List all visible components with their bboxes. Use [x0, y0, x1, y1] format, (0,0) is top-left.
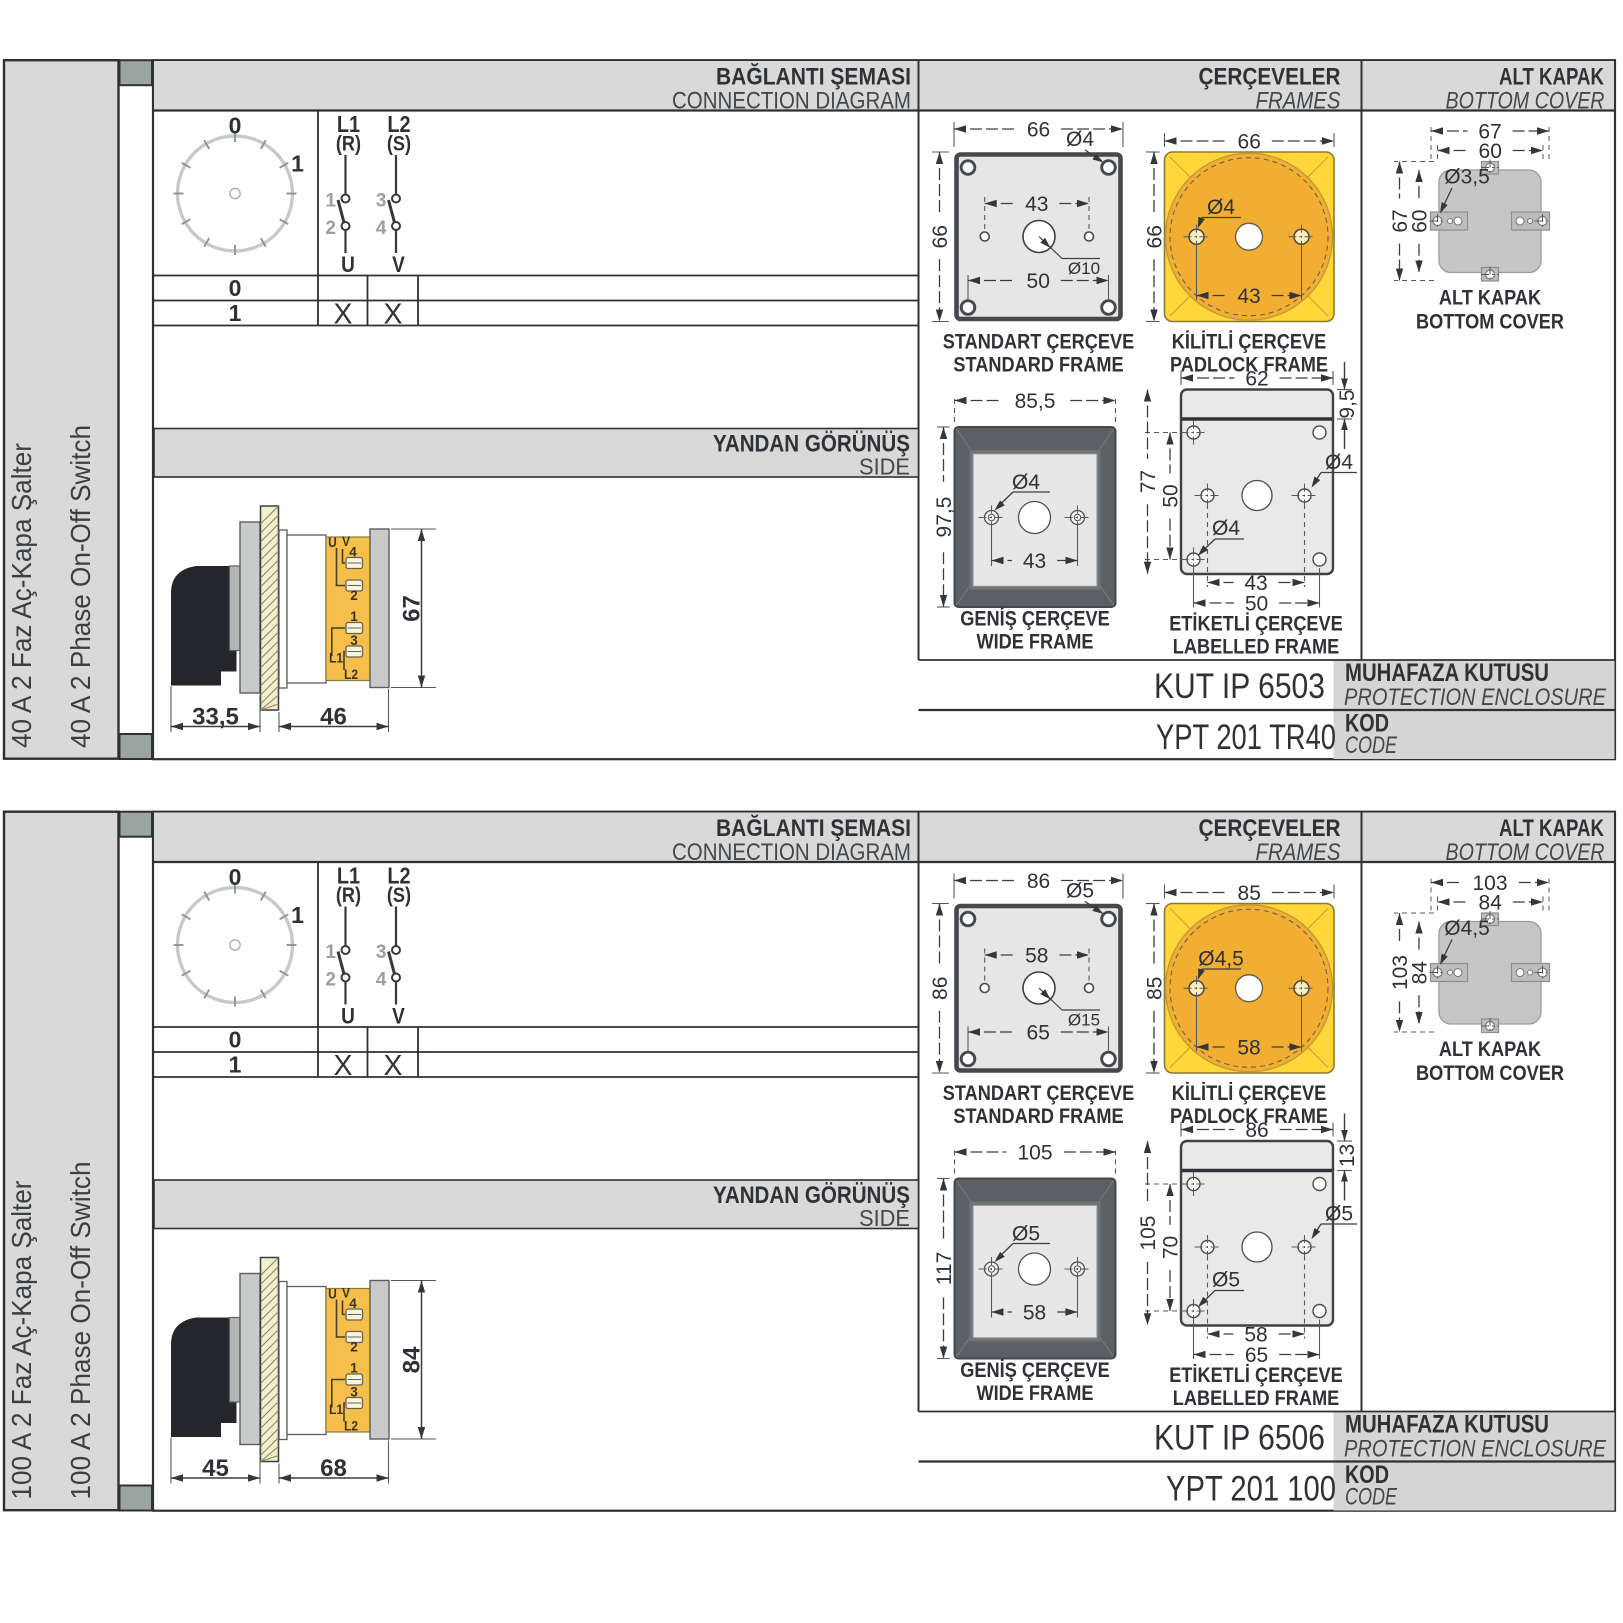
- svg-text:1: 1: [291, 151, 304, 177]
- svg-text:BOTTOM COVER: BOTTOM COVER: [1446, 88, 1605, 115]
- svg-text:Ø4: Ø4: [1325, 451, 1353, 474]
- svg-text:KİLİTLİ ÇERÇEVE: KİLİTLİ ÇERÇEVE: [1172, 331, 1326, 354]
- svg-text:50: 50: [1160, 484, 1183, 507]
- svg-text:(R): (R): [336, 884, 361, 907]
- svg-text:Ø15: Ø15: [1068, 1011, 1100, 1030]
- svg-text:4: 4: [376, 970, 387, 991]
- svg-text:45: 45: [202, 1455, 229, 1482]
- svg-text:X: X: [334, 1050, 353, 1082]
- svg-text:ETİKETLİ ÇERÇEVE: ETİKETLİ ÇERÇEVE: [1169, 1364, 1343, 1387]
- svg-text:77: 77: [1137, 470, 1160, 493]
- svg-text:1: 1: [325, 942, 336, 963]
- svg-text:ÇERÇEVELER: ÇERÇEVELER: [1199, 64, 1341, 91]
- svg-text:WIDE FRAME: WIDE FRAME: [976, 631, 1093, 654]
- svg-text:58: 58: [1025, 945, 1048, 968]
- svg-text:GENİŞ ÇERÇEVE: GENİŞ ÇERÇEVE: [960, 1359, 1109, 1382]
- svg-text:1: 1: [229, 1052, 242, 1078]
- svg-text:Ø4: Ø4: [1066, 128, 1094, 151]
- svg-text:60: 60: [1409, 210, 1432, 233]
- svg-text:66: 66: [929, 225, 952, 248]
- svg-text:Ø4: Ø4: [1207, 196, 1235, 219]
- svg-text:PROTECTION ENCLOSURE: PROTECTION ENCLOSURE: [1344, 684, 1607, 711]
- svg-text:43: 43: [1023, 550, 1046, 573]
- svg-text:ÇERÇEVELER: ÇERÇEVELER: [1199, 815, 1341, 842]
- svg-text:66: 66: [1027, 119, 1050, 142]
- svg-text:(R): (R): [336, 133, 361, 156]
- svg-text:3: 3: [376, 942, 387, 963]
- svg-text:1: 1: [350, 609, 358, 624]
- svg-text:40 A 2 Phase On-Off Switch: 40 A 2 Phase On-Off Switch: [65, 425, 96, 748]
- svg-text:43: 43: [1025, 193, 1048, 216]
- svg-text:FRAMES: FRAMES: [1256, 88, 1341, 115]
- svg-text:Ø3,5: Ø3,5: [1444, 166, 1490, 189]
- svg-text:L2: L2: [344, 1419, 358, 1434]
- svg-text:13: 13: [1336, 1144, 1359, 1167]
- svg-text:117: 117: [933, 1252, 956, 1285]
- svg-text:0: 0: [229, 864, 242, 890]
- svg-text:86: 86: [1245, 1119, 1268, 1142]
- svg-text:GENİŞ ÇERÇEVE: GENİŞ ÇERÇEVE: [960, 608, 1109, 631]
- svg-text:L1: L1: [329, 651, 344, 666]
- svg-text:CONNECTION DIAGRAM: CONNECTION DIAGRAM: [672, 839, 911, 866]
- svg-text:105: 105: [1017, 1142, 1052, 1165]
- svg-text:66: 66: [1238, 131, 1261, 154]
- svg-text:V: V: [392, 252, 405, 277]
- svg-text:KUT IP 6503: KUT IP 6503: [1154, 667, 1325, 706]
- svg-text:U: U: [328, 1287, 337, 1302]
- svg-text:2: 2: [350, 1340, 358, 1355]
- svg-text:FRAMES: FRAMES: [1256, 839, 1341, 866]
- svg-text:STANDART ÇERÇEVE: STANDART ÇERÇEVE: [943, 1082, 1134, 1105]
- svg-text:86: 86: [929, 977, 952, 1000]
- svg-text:100 A 2 Faz Aç-Kapa Şalter: 100 A 2 Faz Aç-Kapa Şalter: [6, 1181, 37, 1500]
- svg-text:ALT KAPAK: ALT KAPAK: [1499, 815, 1605, 842]
- svg-text:Ø5: Ø5: [1212, 1269, 1240, 1292]
- svg-text:ALT KAPAK: ALT KAPAK: [1439, 287, 1541, 310]
- svg-text:ETİKETLİ ÇERÇEVE: ETİKETLİ ÇERÇEVE: [1169, 613, 1343, 636]
- svg-text:97,5: 97,5: [933, 497, 956, 538]
- svg-text:ALT KAPAK: ALT KAPAK: [1439, 1038, 1541, 1061]
- svg-text:2: 2: [325, 970, 336, 991]
- svg-text:ALT KAPAK: ALT KAPAK: [1499, 64, 1605, 91]
- svg-text:85: 85: [1144, 977, 1167, 1000]
- svg-text:Ø5: Ø5: [1325, 1203, 1353, 1226]
- svg-text:1: 1: [229, 300, 242, 326]
- svg-text:84: 84: [399, 1346, 426, 1373]
- svg-text:STANDARD FRAME: STANDARD FRAME: [953, 354, 1123, 377]
- svg-text:Ø4,5: Ø4,5: [1444, 917, 1490, 940]
- svg-text:X: X: [334, 299, 353, 331]
- svg-text:LABELLED FRAME: LABELLED FRAME: [1173, 1387, 1340, 1410]
- svg-text:1: 1: [325, 191, 336, 212]
- svg-text:40 A 2 Faz Aç-Kapa Şalter: 40 A 2 Faz Aç-Kapa Şalter: [6, 443, 37, 748]
- svg-text:Ø5: Ø5: [1012, 1223, 1040, 1246]
- svg-text:MUHAFAZA KUTUSU: MUHAFAZA KUTUSU: [1345, 659, 1549, 687]
- svg-text:BAĞLANTI ŞEMASI: BAĞLANTI ŞEMASI: [716, 63, 911, 91]
- svg-text:43: 43: [1237, 285, 1260, 308]
- svg-text:CODE: CODE: [1345, 732, 1398, 759]
- svg-text:3: 3: [376, 191, 387, 212]
- svg-text:KUT IP 6506: KUT IP 6506: [1154, 1419, 1325, 1458]
- svg-text:33,5: 33,5: [192, 704, 239, 731]
- svg-text:V: V: [392, 1004, 405, 1029]
- svg-text:58: 58: [1237, 1037, 1260, 1060]
- svg-text:9,5: 9,5: [1336, 389, 1359, 418]
- svg-text:BOTTOM COVER: BOTTOM COVER: [1446, 839, 1605, 866]
- svg-text:YPT 201 100: YPT 201 100: [1166, 1470, 1336, 1509]
- svg-text:X: X: [384, 1050, 403, 1082]
- svg-text:4: 4: [376, 218, 387, 239]
- svg-text:50: 50: [1027, 270, 1050, 293]
- svg-text:58: 58: [1023, 1302, 1046, 1325]
- svg-text:60: 60: [1479, 140, 1502, 163]
- svg-text:Ø4: Ø4: [1012, 471, 1040, 494]
- svg-text:Ø5: Ø5: [1066, 880, 1094, 903]
- svg-text:67: 67: [399, 595, 426, 622]
- svg-text:U: U: [341, 1004, 355, 1029]
- svg-text:CODE: CODE: [1345, 1484, 1398, 1511]
- svg-text:BOTTOM COVER: BOTTOM COVER: [1416, 311, 1564, 334]
- svg-text:YPT 201 TR40: YPT 201 TR40: [1156, 718, 1336, 757]
- svg-text:65: 65: [1027, 1022, 1050, 1045]
- svg-text:U: U: [341, 252, 355, 277]
- svg-text:Ø4,5: Ø4,5: [1198, 948, 1244, 971]
- svg-text:84: 84: [1479, 892, 1503, 915]
- svg-text:85,5: 85,5: [1015, 390, 1056, 413]
- svg-text:1: 1: [350, 1361, 358, 1376]
- svg-text:Ø10: Ø10: [1068, 259, 1100, 278]
- svg-text:2: 2: [325, 218, 336, 239]
- svg-text:BAĞLANTI ŞEMASI: BAĞLANTI ŞEMASI: [716, 814, 911, 842]
- svg-text:86: 86: [1027, 870, 1050, 893]
- svg-text:100 A 2 Phase On-Off Switch: 100 A 2 Phase On-Off Switch: [65, 1162, 96, 1500]
- svg-text:4: 4: [349, 545, 357, 560]
- svg-text:0: 0: [229, 113, 242, 139]
- svg-text:4: 4: [349, 1296, 357, 1311]
- svg-text:84: 84: [1409, 961, 1432, 985]
- svg-text:SIDE: SIDE: [859, 1205, 910, 1231]
- svg-text:66: 66: [1144, 225, 1167, 248]
- svg-text:U: U: [328, 535, 337, 550]
- svg-text:LABELLED FRAME: LABELLED FRAME: [1173, 636, 1340, 659]
- svg-text:L1: L1: [329, 1402, 344, 1417]
- svg-text:(S): (S): [387, 884, 411, 907]
- svg-text:SIDE: SIDE: [859, 454, 910, 480]
- svg-text:MUHAFAZA KUTUSU: MUHAFAZA KUTUSU: [1345, 1411, 1549, 1439]
- svg-text:STANDARD FRAME: STANDARD FRAME: [953, 1105, 1123, 1128]
- svg-text:0: 0: [229, 1027, 242, 1053]
- svg-text:0: 0: [229, 275, 242, 301]
- svg-text:62: 62: [1245, 368, 1268, 391]
- svg-text:105: 105: [1137, 1216, 1160, 1251]
- svg-text:1: 1: [291, 902, 304, 928]
- svg-text:PROTECTION ENCLOSURE: PROTECTION ENCLOSURE: [1344, 1436, 1607, 1463]
- svg-text:68: 68: [320, 1455, 347, 1482]
- svg-text:X: X: [384, 299, 403, 331]
- svg-text:STANDART ÇERÇEVE: STANDART ÇERÇEVE: [943, 331, 1134, 354]
- svg-text:WIDE FRAME: WIDE FRAME: [976, 1382, 1093, 1405]
- svg-text:L2: L2: [344, 667, 358, 682]
- svg-text:85: 85: [1238, 882, 1261, 905]
- svg-text:3: 3: [350, 633, 358, 648]
- svg-text:CONNECTION DIAGRAM: CONNECTION DIAGRAM: [672, 88, 911, 115]
- svg-text:KİLİTLİ ÇERÇEVE: KİLİTLİ ÇERÇEVE: [1172, 1082, 1326, 1105]
- svg-text:3: 3: [350, 1385, 358, 1400]
- svg-text:BOTTOM COVER: BOTTOM COVER: [1416, 1062, 1564, 1085]
- svg-text:70: 70: [1160, 1236, 1183, 1259]
- svg-text:2: 2: [350, 588, 358, 603]
- svg-text:Ø4: Ø4: [1212, 517, 1240, 540]
- svg-text:46: 46: [320, 704, 347, 731]
- svg-text:(S): (S): [387, 133, 411, 156]
